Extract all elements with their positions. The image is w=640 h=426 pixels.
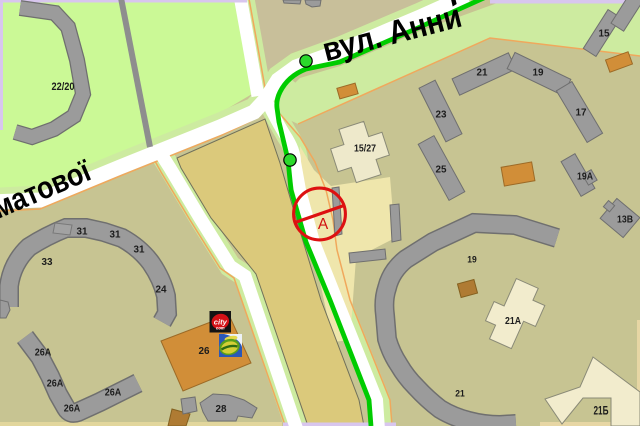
svg-text:26: 26 bbox=[199, 345, 210, 357]
svg-text:21Б: 21Б bbox=[594, 404, 609, 418]
svg-text:21A: 21A bbox=[505, 315, 521, 327]
svg-text:26A: 26A bbox=[105, 387, 122, 399]
svg-text:33: 33 bbox=[42, 256, 53, 268]
svg-text:21: 21 bbox=[477, 67, 488, 79]
svg-text:15/27: 15/27 bbox=[354, 143, 376, 155]
svg-text:31: 31 bbox=[77, 226, 88, 238]
svg-text:26A: 26A bbox=[64, 403, 81, 415]
svg-text:21: 21 bbox=[455, 389, 465, 400]
svg-text:31: 31 bbox=[110, 229, 121, 241]
svg-text:23: 23 bbox=[436, 109, 447, 121]
svg-text:13B: 13B bbox=[617, 214, 633, 226]
svg-text:19: 19 bbox=[467, 255, 477, 266]
svg-text:19A: 19A bbox=[577, 171, 593, 183]
svg-text:17: 17 bbox=[576, 107, 587, 119]
svg-text:22/20: 22/20 bbox=[52, 81, 75, 93]
svg-text:31: 31 bbox=[134, 244, 145, 256]
svg-text:15: 15 bbox=[599, 28, 610, 40]
svg-text:28: 28 bbox=[216, 403, 227, 415]
svg-text:24: 24 bbox=[156, 284, 167, 296]
svg-text:25: 25 bbox=[436, 164, 447, 176]
svg-text:A: A bbox=[318, 216, 329, 233]
svg-text:26A: 26A bbox=[47, 378, 64, 390]
svg-text:26A: 26A bbox=[35, 347, 52, 359]
svg-text:19: 19 bbox=[533, 67, 544, 79]
svg-text:com: com bbox=[216, 326, 225, 331]
